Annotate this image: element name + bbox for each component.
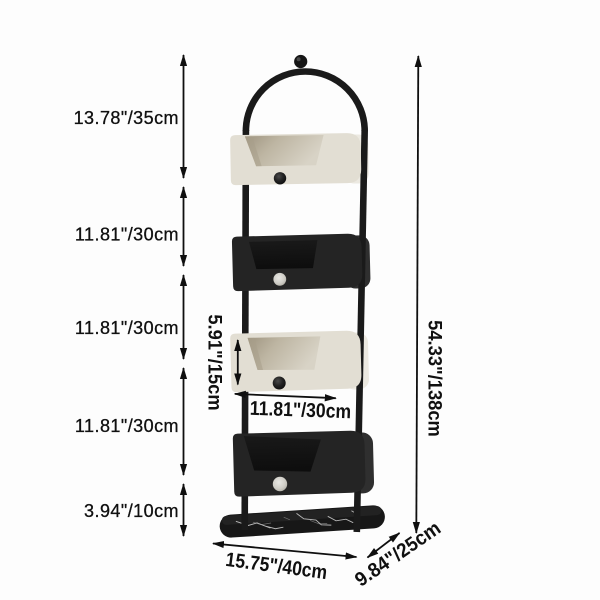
svg-text:11.81"/30cm: 11.81"/30cm	[75, 225, 179, 245]
svg-text:11.81"/30cm: 11.81"/30cm	[75, 416, 179, 436]
svg-text:11.81"/30cm: 11.81"/30cm	[75, 318, 179, 338]
svg-text:5.91"/15cm: 5.91"/15cm	[203, 314, 225, 410]
svg-text:13.78"/35cm: 13.78"/35cm	[74, 108, 179, 128]
svg-text:3.94"/10cm: 3.94"/10cm	[84, 501, 179, 521]
svg-text:54.33"/138cm: 54.33"/138cm	[423, 320, 445, 437]
svg-text:11.81"/30cm: 11.81"/30cm	[250, 397, 352, 423]
